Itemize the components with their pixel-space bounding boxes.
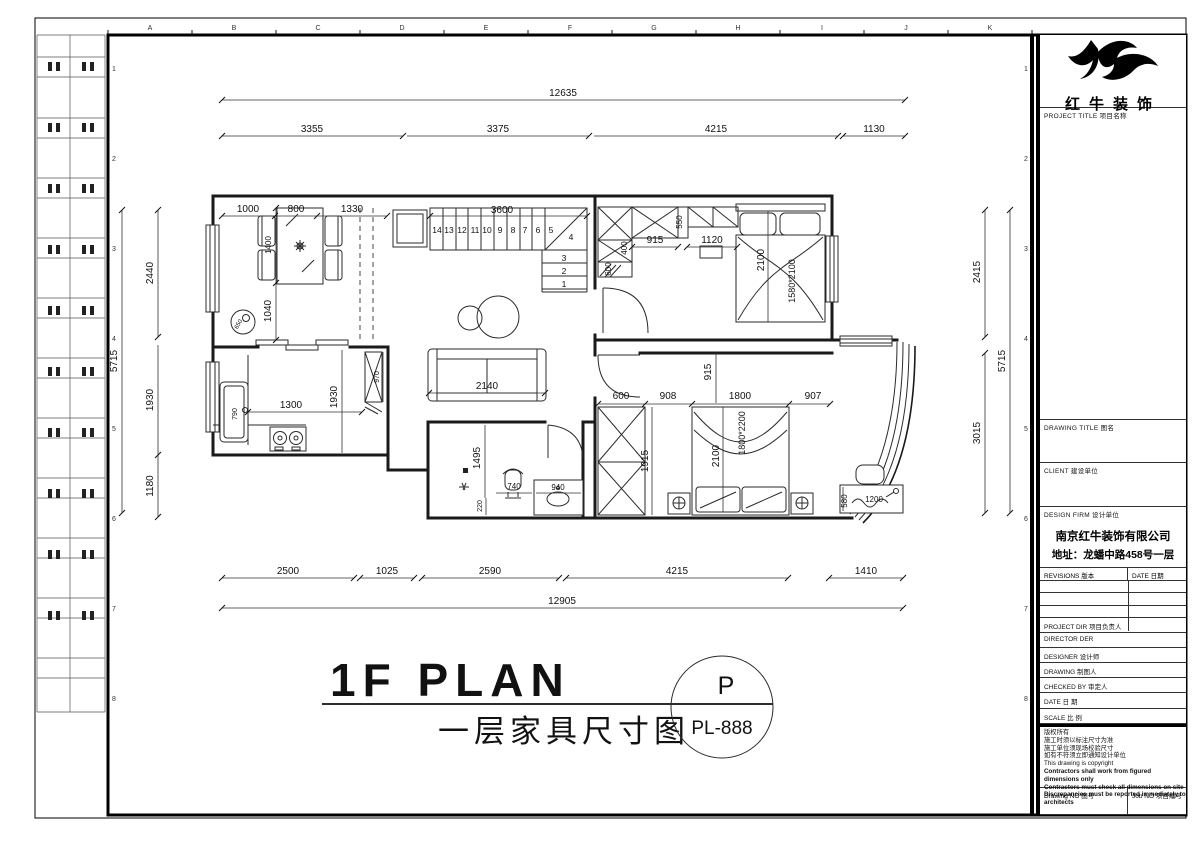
grid-letter: C [315, 25, 320, 32]
revision-row [1040, 606, 1186, 618]
grid-number-right: 4 [1024, 336, 1028, 343]
dim-text: 550 [675, 215, 684, 229]
dim-text: 4215 [705, 124, 728, 135]
dim-text: 907 [805, 391, 822, 402]
dim-text: 1330 [341, 204, 364, 215]
grid-number-right: 7 [1024, 606, 1028, 613]
grid-letter: J [904, 25, 908, 32]
grid-number-left: 4 [112, 336, 116, 343]
client-section: CLIENT 建设单位 [1040, 463, 1186, 507]
stair-number: 5 [549, 225, 554, 235]
copyright-notes: 版权所有 施工时须以标注尺寸为准 施工单位须现场校验尺寸 如有不符须立即通知设计… [1040, 724, 1186, 788]
grid-letter: I [821, 25, 823, 32]
dim-text: 1180 [145, 475, 156, 497]
binding-strip [37, 35, 105, 712]
dressing-desk [840, 465, 903, 513]
round-appliance: 650 [231, 310, 255, 334]
dim-text: 1120 [701, 235, 723, 246]
stair-number: 13 [444, 225, 454, 235]
stair-number: 2 [562, 266, 567, 276]
dim-text: 1800*2200 [737, 411, 747, 455]
door-bathroom [548, 425, 583, 458]
checked-by-row: CHECKED BY 审定人 [1040, 678, 1186, 693]
note-line: This drawing is copyright [1044, 760, 1186, 768]
revisions-label: REVISIONS 版本 [1040, 568, 1128, 580]
door-bedroom1 [603, 288, 648, 333]
dim-text: 5715 [997, 349, 1008, 372]
drawing-title-label: DRAWING TITLE 图名 [1040, 420, 1186, 432]
dim-text: 1400 [264, 236, 273, 254]
director-row: DIRECTOR DER [1040, 633, 1186, 648]
bubble-letter: P [718, 672, 735, 700]
dim-text: 800 [288, 204, 305, 215]
dim-text: 2500 [277, 566, 300, 577]
dim-text: 1000 [237, 204, 260, 215]
dim-text: 1930 [329, 385, 340, 408]
window-dining [206, 225, 219, 312]
floor-plan-svg: A B C D E F G H I J K 1 2 3 4 5 6 7 8 1 … [0, 0, 1200, 844]
stove [270, 427, 306, 451]
stair-number: 9 [498, 225, 503, 235]
dim-text: 790 [232, 408, 239, 420]
stair-number: 11 [471, 225, 480, 235]
grid-number-left: 7 [112, 606, 116, 613]
sliding-door-kitchen [256, 340, 348, 350]
number-section: Drawing NO 图号 Job NO 项目编号 [1040, 788, 1186, 815]
footer-title-en: 1F PLAN [330, 654, 571, 706]
grid-number-right: 3 [1024, 246, 1028, 253]
stair-number: 14 [432, 225, 442, 235]
dim-text: 600 [613, 391, 630, 402]
dim-text: 1580*2100 [787, 259, 797, 303]
dim-text: 2415 [972, 260, 983, 283]
grid-letter: D [399, 25, 404, 32]
design-firm-section: DESIGN FIRM 设计单位 南京红牛装饰有限公司 地址：龙蟠中路458号一… [1040, 507, 1186, 568]
dim-text: 1410 [855, 566, 878, 577]
window-right-mid [840, 336, 892, 346]
grid-number-right: 1 [1024, 66, 1028, 73]
window-kitchen [206, 362, 219, 432]
stair-number: 8 [511, 225, 516, 235]
stair-number: 4 [569, 232, 574, 242]
dim-text: 4215 [666, 566, 689, 577]
stair-number: 10 [482, 225, 492, 235]
title-block: 红牛装饰 PROJECT TITLE 项目名称 DRAWING TITLE 图名… [1036, 35, 1186, 815]
grid-number-left: 1 [112, 66, 116, 73]
grid-letter: F [568, 25, 572, 32]
date-col-label: DATE 日期 [1128, 568, 1186, 580]
grid-number-left: 8 [112, 696, 116, 703]
dim-text: 5715 [109, 349, 120, 372]
drawing-no-label: Drawing NO 图号 [1040, 788, 1128, 814]
designer-row: DESIGNER 设计师 [1040, 648, 1186, 663]
grid-letter: G [651, 25, 656, 32]
grid-number-left: 6 [112, 516, 116, 523]
dimension-lines [119, 97, 1013, 611]
drawing-title-footer: 1F PLAN 一层家具尺寸图 P PL-888 [322, 654, 773, 758]
firm-address: 地址：龙蟠中路458号一层 [1040, 547, 1186, 562]
nightstand-left [668, 493, 690, 514]
project-title-section: PROJECT TITLE 项目名称 [1040, 108, 1186, 420]
note-line: 如有不符须立即通知设计单位 [1044, 752, 1186, 760]
grid-number-left: 2 [112, 156, 116, 163]
floor-drain [459, 468, 469, 490]
dim-text: 915 [703, 363, 714, 380]
logo-section: 红牛装饰 [1040, 35, 1186, 108]
dim-text: 3600 [491, 205, 514, 216]
dim-text: 1040 [263, 299, 274, 322]
note-line: 施工时须以标注尺寸为准 [1044, 737, 1186, 745]
grid-letter: H [735, 25, 740, 32]
dim-text: 1025 [376, 566, 399, 577]
dim-text: 3355 [301, 124, 324, 135]
drawing-sheet: A B C D E F G H I J K 1 2 3 4 5 6 7 8 1 … [0, 0, 1200, 844]
design-firm-label: DESIGN FIRM 设计单位 [1040, 507, 1186, 519]
grid-number-left: 3 [112, 246, 116, 253]
grid-letter: K [988, 25, 993, 32]
grid-number-right: 6 [1024, 516, 1028, 523]
dim-text: 580 [840, 494, 849, 508]
footer-title-cn: 一层家具尺寸图 [438, 714, 690, 749]
job-no-label: Job NO 项目编号 [1128, 788, 1186, 814]
dim-text: 908 [660, 391, 677, 402]
dim-text: 1800 [729, 391, 752, 402]
grid-letter: E [484, 25, 489, 32]
revision-row [1040, 593, 1186, 605]
dim-text: 940 [551, 483, 565, 492]
grid-number-right: 2 [1024, 156, 1028, 163]
note-line: Contractors shall work from figured dime… [1044, 768, 1186, 784]
dim-text: 1915 [640, 449, 651, 472]
bubble-code: PL-888 [691, 718, 752, 739]
grid-letter: B [232, 25, 237, 32]
stair-number: 12 [457, 225, 467, 235]
dim-text: 970 [374, 371, 381, 383]
nightstand-right [791, 493, 813, 514]
dim-text: 3375 [487, 124, 510, 135]
stair-number: 3 [562, 253, 567, 263]
dim-text: 220 [477, 500, 484, 512]
scale-row: SCALE 比 例 [1040, 709, 1186, 724]
dim-text: 915 [647, 235, 664, 246]
revision-row [1040, 581, 1186, 593]
grid-number-right: 5 [1024, 426, 1028, 433]
dashed-partition [360, 208, 373, 340]
project-dir-row: PROJECT DIR 项目负责人 [1040, 618, 1186, 633]
note-line: 版权所有 [1044, 729, 1186, 737]
staircase: 14 13 12 11 10 9 8 7 6 5 4 3 2 1 [393, 208, 587, 292]
wardrobe-bedroom2 [598, 407, 645, 515]
dim-text: 2590 [479, 566, 502, 577]
dim-text: 2440 [145, 261, 156, 284]
dim-text: 2140 [476, 381, 499, 392]
binding-strip-glyphs [50, 62, 92, 672]
dim-text: 400 [620, 241, 629, 255]
window-bedroom1 [826, 236, 838, 302]
date-row: DATE 日 期 [1040, 693, 1186, 708]
dim-text: 12635 [549, 88, 577, 99]
dim-text: 600 [604, 262, 613, 276]
revisions-rows [1040, 581, 1186, 618]
firm-name: 南京红牛装饰有限公司 [1040, 528, 1186, 544]
grid-number-left: 5 [112, 426, 116, 433]
client-label: CLIENT 建设单位 [1040, 463, 1186, 475]
drawing-title-section: DRAWING TITLE 图名 [1040, 420, 1186, 463]
dim-text: 2100 [711, 444, 722, 467]
dim-text: 740 [507, 482, 521, 491]
bed-bedroom1 [736, 204, 825, 322]
stair-number: 7 [523, 225, 528, 235]
dim-text: 1930 [145, 388, 156, 411]
grid-letter: A [148, 25, 153, 32]
signature-rows: PROJECT DIR 项目负责人 DIRECTOR DER DESIGNER … [1040, 618, 1186, 724]
dim-text: 1130 [863, 124, 885, 135]
redbull-logo-icon [1067, 38, 1159, 86]
dim-text: 2100 [756, 248, 767, 271]
dim-text: 1300 [280, 400, 303, 411]
stair-number: 1 [562, 279, 567, 289]
dim-text: 3015 [972, 421, 983, 444]
kitchen-sink: 790 [220, 382, 248, 442]
project-title-label: PROJECT TITLE 项目名称 [1040, 108, 1186, 120]
stair-number: 6 [536, 225, 541, 235]
dim-text: 12905 [548, 596, 576, 607]
dim-text: 1200 [865, 495, 883, 504]
coffee-table [458, 296, 519, 338]
grid-number-right: 8 [1024, 696, 1028, 703]
revisions-header: REVISIONS 版本 DATE 日期 [1040, 568, 1186, 581]
dim-text: 1495 [472, 446, 483, 469]
drawing-row: DRAWING 制图人 [1040, 663, 1186, 678]
